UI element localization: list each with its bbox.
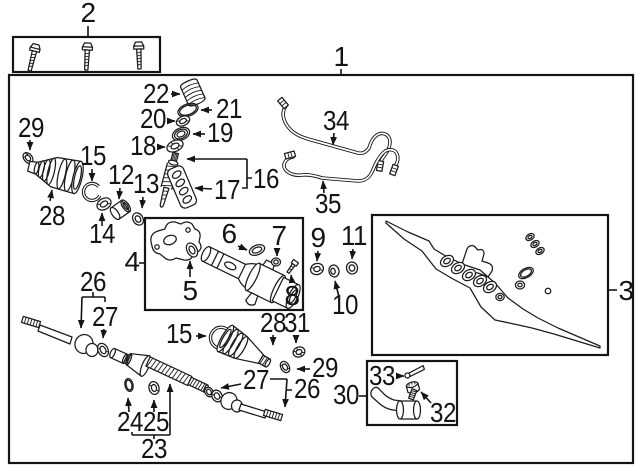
- leader-26-left-arrow: [81, 297, 82, 328]
- ring-13-drawing: [130, 211, 145, 227]
- leader-6: [238, 246, 247, 250]
- boot-clamp-right-drawing: [278, 360, 291, 375]
- callout-13[interactable]: 13: [133, 168, 159, 199]
- leader-17: [195, 188, 212, 189]
- callout-26-left[interactable]: 26: [80, 266, 106, 297]
- callout-33[interactable]: 33: [369, 360, 395, 391]
- rack-guide-plate-drawing: [166, 164, 198, 209]
- clamp-31-drawing: [292, 345, 307, 359]
- parts-diagram-canvas: 1 2 3 4 5 6 7 8 9 10 11 12 13 14 15 15 1…: [0, 0, 640, 471]
- callout-10[interactable]: 10: [332, 289, 358, 320]
- callout-22[interactable]: 22: [143, 78, 169, 109]
- leader-26-right-arrow: [285, 379, 287, 407]
- callout-16[interactable]: 16: [253, 163, 279, 194]
- exploded-parts-diagram: 1 2 3 4 5 6 7 8 9 10 11 12 13 14 15 15 1…: [0, 0, 640, 471]
- steering-boot-left-drawing: [25, 150, 86, 194]
- callout-14[interactable]: 14: [89, 218, 115, 249]
- callout-28-right[interactable]: 28: [260, 307, 286, 338]
- callout-25[interactable]: 25: [143, 406, 169, 437]
- leader-16-bracket: [242, 159, 252, 188]
- callout-31[interactable]: 31: [284, 307, 310, 338]
- nut-7-drawing: [272, 258, 281, 266]
- snap-ring-left-drawing: [84, 183, 100, 200]
- callout-23[interactable]: 23: [141, 433, 167, 464]
- callout-12[interactable]: 12: [108, 159, 134, 190]
- leader-27-right: [221, 384, 241, 388]
- outer-tie-rod-end-drawing: [371, 387, 421, 419]
- ring-24-drawing: [124, 378, 135, 392]
- leader-26-right-bracket: [270, 379, 292, 390]
- grommet-9-drawing: [309, 262, 325, 276]
- callout-5[interactable]: 5: [182, 275, 197, 306]
- callout-9[interactable]: 9: [310, 222, 325, 253]
- callout-3[interactable]: 3: [618, 275, 633, 306]
- callout-15-left[interactable]: 15: [80, 140, 106, 171]
- callout-18[interactable]: 18: [130, 130, 156, 161]
- callout-21[interactable]: 21: [216, 93, 242, 124]
- ring-25-drawing: [147, 380, 160, 395]
- callout-6[interactable]: 6: [221, 218, 236, 249]
- callout-24[interactable]: 24: [117, 406, 143, 437]
- gasket-kit-drawing: [386, 221, 600, 348]
- callout-35[interactable]: 35: [315, 188, 341, 219]
- callout-4[interactable]: 4: [124, 246, 139, 277]
- callout-15-right[interactable]: 15: [166, 318, 192, 349]
- callout-32[interactable]: 32: [430, 397, 456, 428]
- callout-17[interactable]: 17: [214, 174, 240, 205]
- callout-27-right[interactable]: 27: [243, 364, 269, 395]
- callout-29-left[interactable]: 29: [18, 112, 44, 143]
- callouts: 1 2 3 4 5 6 7 8 9 10 11 12 13 14 15 15 1…: [18, 0, 634, 464]
- mounting-bolts-drawing: [25, 42, 145, 72]
- bolt-8-drawing: [286, 260, 299, 275]
- callout-1[interactable]: 1: [333, 41, 348, 72]
- grommet-11-drawing: [345, 261, 359, 275]
- cotter-pin-drawing: [404, 366, 426, 379]
- callout-34[interactable]: 34: [323, 105, 349, 136]
- callout-2[interactable]: 2: [80, 0, 95, 28]
- callout-30[interactable]: 30: [333, 379, 359, 410]
- callout-11[interactable]: 11: [341, 220, 367, 251]
- callout-27-left[interactable]: 27: [92, 301, 118, 332]
- grommet-10-drawing: [328, 264, 340, 278]
- callout-28-left[interactable]: 28: [39, 200, 65, 231]
- plug-6-drawing: [248, 243, 266, 258]
- callout-7[interactable]: 7: [271, 220, 286, 251]
